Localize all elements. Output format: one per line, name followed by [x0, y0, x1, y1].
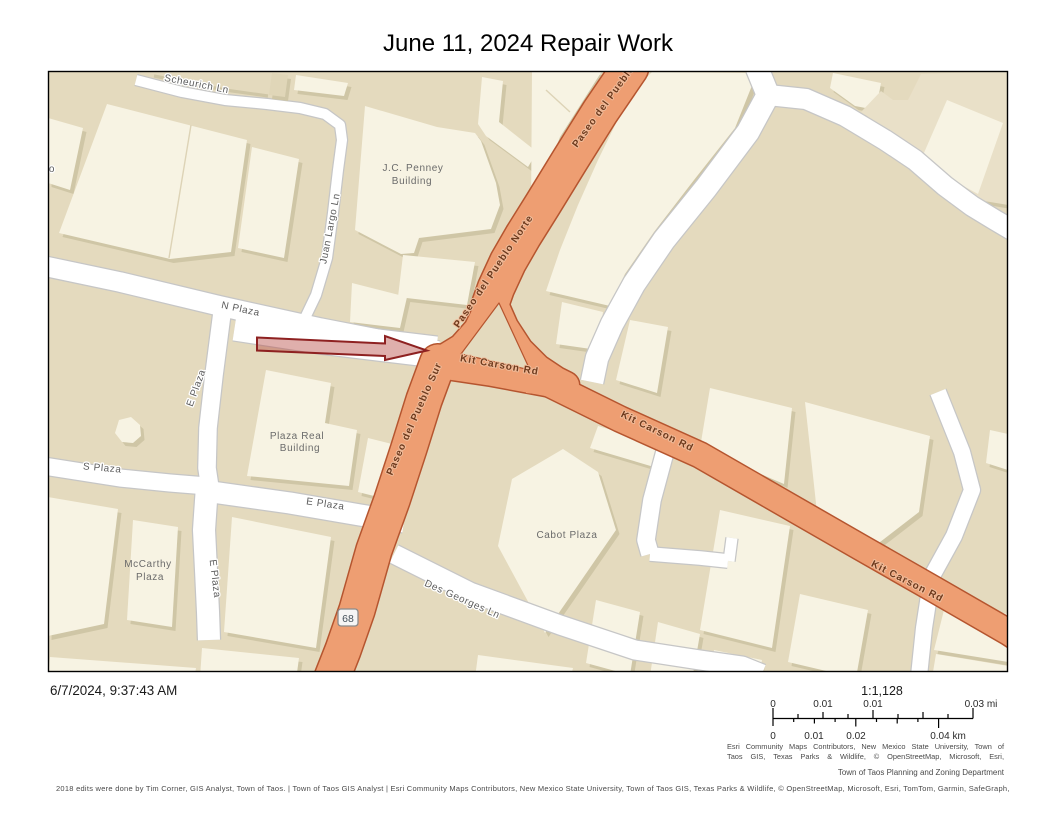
svg-text:0: 0: [770, 731, 776, 742]
svg-text:Cabot Plaza: Cabot Plaza: [536, 530, 597, 541]
svg-text:Building: Building: [280, 443, 320, 454]
svg-text:0.01: 0.01: [804, 731, 824, 742]
svg-text:Plaza: Plaza: [136, 572, 164, 583]
svg-text:Building: Building: [392, 176, 432, 187]
svg-text:0.01: 0.01: [813, 699, 833, 710]
svg-text:0.01: 0.01: [863, 699, 883, 710]
svg-text:0: 0: [770, 699, 776, 710]
svg-text:0.04 km: 0.04 km: [930, 731, 966, 742]
svg-text:68: 68: [342, 613, 354, 625]
svg-text:McCarthy: McCarthy: [124, 559, 172, 570]
svg-text:0.02: 0.02: [846, 731, 866, 742]
svg-text:Plaza Real: Plaza Real: [270, 431, 324, 442]
svg-text:o: o: [49, 164, 55, 175]
svg-text:J.C. Penney: J.C. Penney: [382, 163, 443, 174]
svg-text:0.03 mi: 0.03 mi: [965, 699, 998, 710]
